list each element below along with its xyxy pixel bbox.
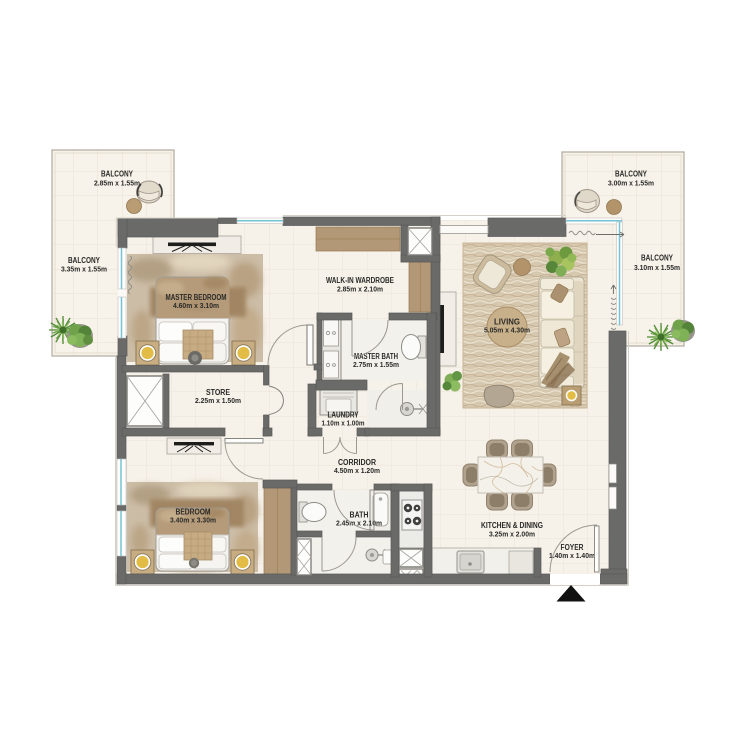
svg-text:BALCONY: BALCONY (641, 254, 674, 263)
svg-text:STORE: STORE (206, 388, 231, 397)
svg-text:CORRIDOR: CORRIDOR (338, 458, 376, 467)
svg-text:BALCONY: BALCONY (68, 256, 101, 265)
svg-text:1.40m x 1.40m: 1.40m x 1.40m (549, 553, 595, 560)
svg-text:2.85m x 2.10m: 2.85m x 2.10m (337, 287, 383, 294)
svg-text:3.40m x 3.30m: 3.40m x 3.30m (170, 518, 216, 525)
svg-text:BEDROOM: BEDROOM (176, 508, 211, 517)
svg-text:BALCONY: BALCONY (101, 170, 134, 179)
svg-text:BATH: BATH (350, 511, 369, 520)
svg-text:WALK-IN WARDROBE: WALK-IN WARDROBE (326, 276, 395, 285)
svg-text:3.00m x 1.55m: 3.00m x 1.55m (608, 181, 654, 188)
svg-text:1.10m x 1.00m: 1.10m x 1.00m (322, 421, 365, 428)
svg-text:FOYER: FOYER (561, 543, 584, 552)
svg-text:KITCHEN & DINING: KITCHEN & DINING (481, 521, 543, 530)
svg-text:2.45m x 2.10m: 2.45m x 2.10m (336, 521, 382, 528)
svg-text:LAUNDRY: LAUNDRY (328, 411, 360, 420)
svg-text:MASTER BEDROOM: MASTER BEDROOM (166, 293, 227, 302)
svg-text:3.35m x 1.55m: 3.35m x 1.55m (61, 267, 107, 274)
svg-text:2.25m x 1.50m: 2.25m x 1.50m (195, 398, 241, 405)
svg-text:2.75m x 1.55m: 2.75m x 1.55m (353, 362, 399, 369)
svg-text:4.50m x 1.20m: 4.50m x 1.20m (334, 468, 380, 475)
svg-text:5.05m x 4.30m: 5.05m x 4.30m (484, 328, 530, 335)
svg-text:2.85m x 1.55m: 2.85m x 1.55m (94, 181, 140, 188)
svg-text:3.10m x 1.55m: 3.10m x 1.55m (634, 265, 680, 272)
svg-text:BALCONY: BALCONY (615, 170, 648, 179)
svg-text:MASTER BATH: MASTER BATH (354, 352, 398, 361)
svg-text:4.60m x 3.10m: 4.60m x 3.10m (173, 303, 219, 310)
svg-text:3.25m x 2.00m: 3.25m x 2.00m (489, 532, 535, 539)
svg-text:LIVING: LIVING (494, 318, 520, 327)
